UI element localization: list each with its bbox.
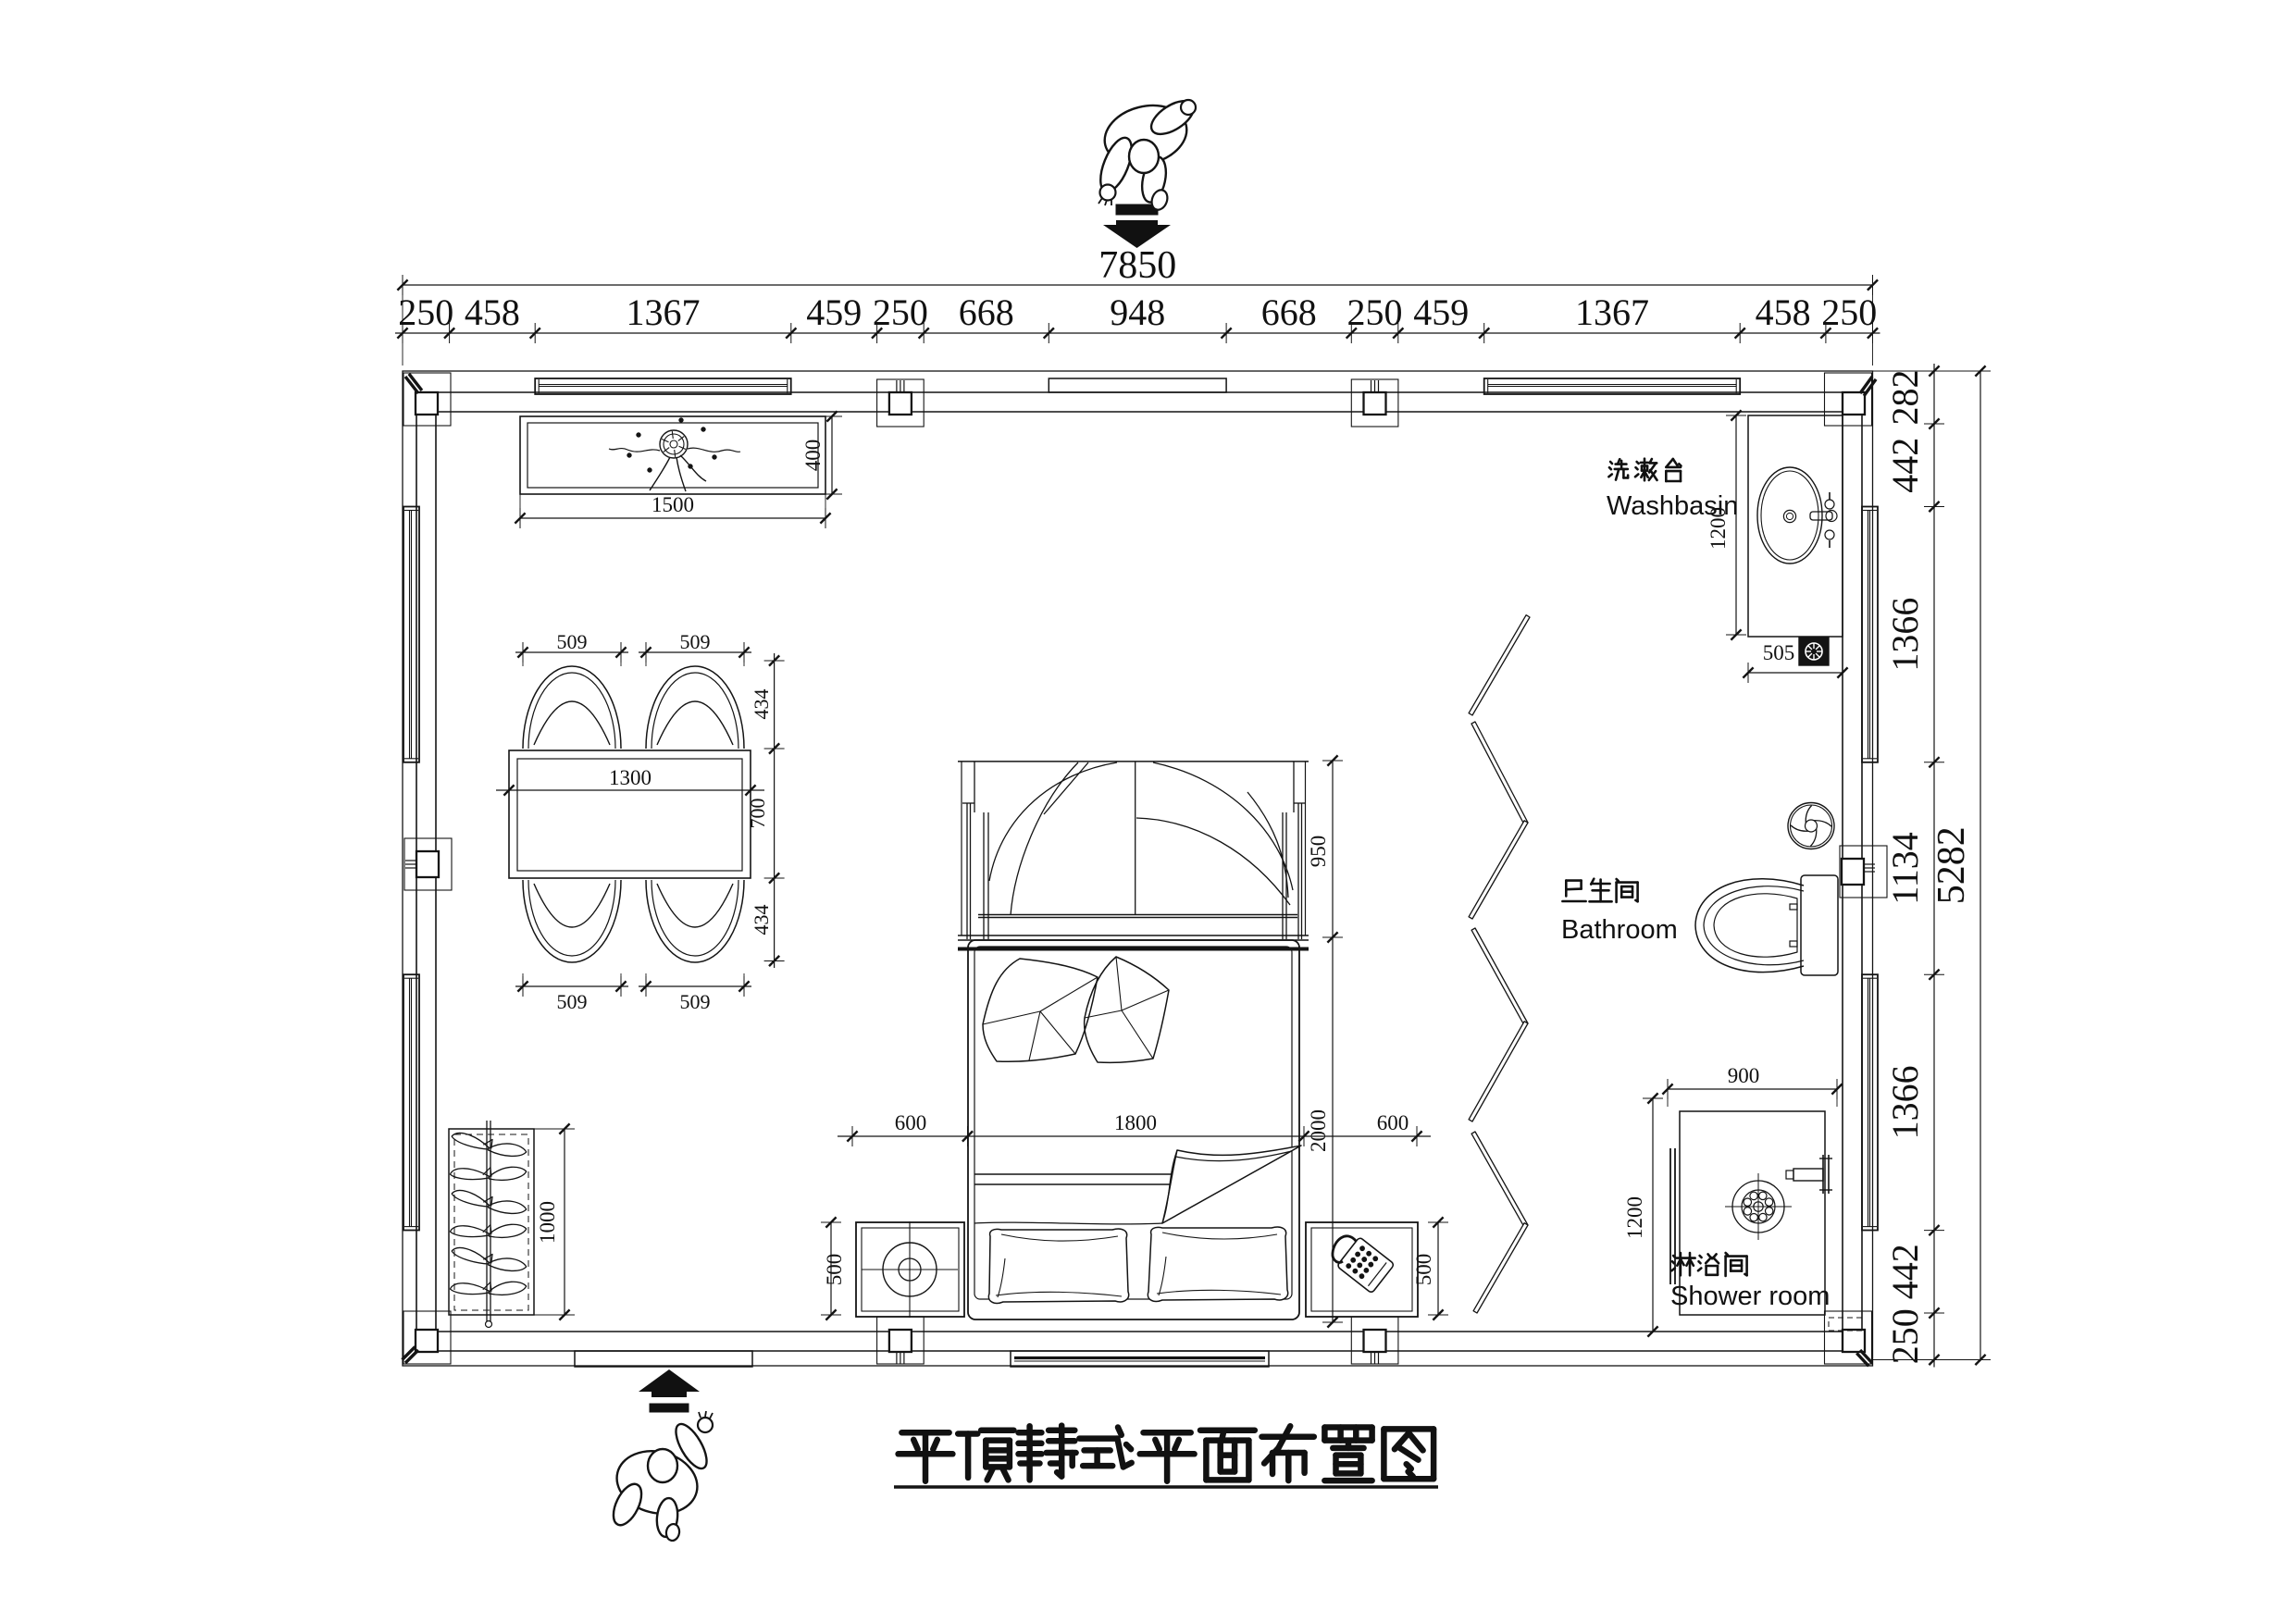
svg-text:600: 600 <box>1377 1111 1409 1134</box>
svg-text:Bathroom: Bathroom <box>1561 915 1678 945</box>
svg-text:434: 434 <box>750 905 773 935</box>
svg-text:505: 505 <box>1763 641 1795 664</box>
svg-text:Shower room: Shower room <box>1670 1282 1830 1311</box>
svg-text:250: 250 <box>1347 291 1403 333</box>
svg-text:700: 700 <box>746 799 769 829</box>
svg-text:458: 458 <box>465 291 520 333</box>
svg-text:509: 509 <box>680 630 711 653</box>
svg-text:Washbasin: Washbasin <box>1607 491 1738 521</box>
svg-text:1134: 1134 <box>1884 832 1926 905</box>
svg-text:509: 509 <box>557 990 588 1013</box>
svg-text:250: 250 <box>398 291 453 333</box>
svg-text:250: 250 <box>1884 1308 1926 1364</box>
svg-text:1300: 1300 <box>609 766 652 789</box>
svg-text:459: 459 <box>806 291 862 333</box>
svg-text:1500: 1500 <box>652 493 694 516</box>
svg-text:2000: 2000 <box>1307 1109 1330 1152</box>
svg-text:442: 442 <box>1884 1244 1926 1299</box>
svg-text:250: 250 <box>1821 291 1877 333</box>
svg-text:459: 459 <box>1413 291 1469 333</box>
svg-text:500: 500 <box>1412 1254 1435 1286</box>
svg-text:1000: 1000 <box>536 1201 559 1244</box>
svg-text:500: 500 <box>823 1254 846 1286</box>
svg-text:250: 250 <box>873 291 928 333</box>
svg-text:400: 400 <box>801 440 825 472</box>
svg-text:5282: 5282 <box>1930 826 1973 904</box>
svg-text:509: 509 <box>680 990 711 1013</box>
svg-text:1200: 1200 <box>1623 1196 1646 1239</box>
svg-text:948: 948 <box>1110 291 1165 333</box>
svg-text:1367: 1367 <box>1575 291 1649 333</box>
svg-text:509: 509 <box>557 630 588 653</box>
svg-text:458: 458 <box>1756 291 1811 333</box>
svg-text:1366: 1366 <box>1884 1065 1926 1139</box>
svg-text:1367: 1367 <box>627 291 701 333</box>
svg-text:1800: 1800 <box>1114 1111 1157 1134</box>
svg-text:282: 282 <box>1884 370 1926 426</box>
svg-text:442: 442 <box>1884 438 1926 493</box>
svg-text:7850: 7850 <box>1098 244 1176 287</box>
svg-text:900: 900 <box>1728 1064 1760 1087</box>
svg-text:1366: 1366 <box>1884 598 1926 672</box>
svg-text:668: 668 <box>1261 291 1317 333</box>
svg-text:434: 434 <box>750 689 773 720</box>
svg-text:600: 600 <box>895 1111 927 1134</box>
svg-text:950: 950 <box>1307 836 1330 868</box>
svg-text:668: 668 <box>959 291 1014 333</box>
